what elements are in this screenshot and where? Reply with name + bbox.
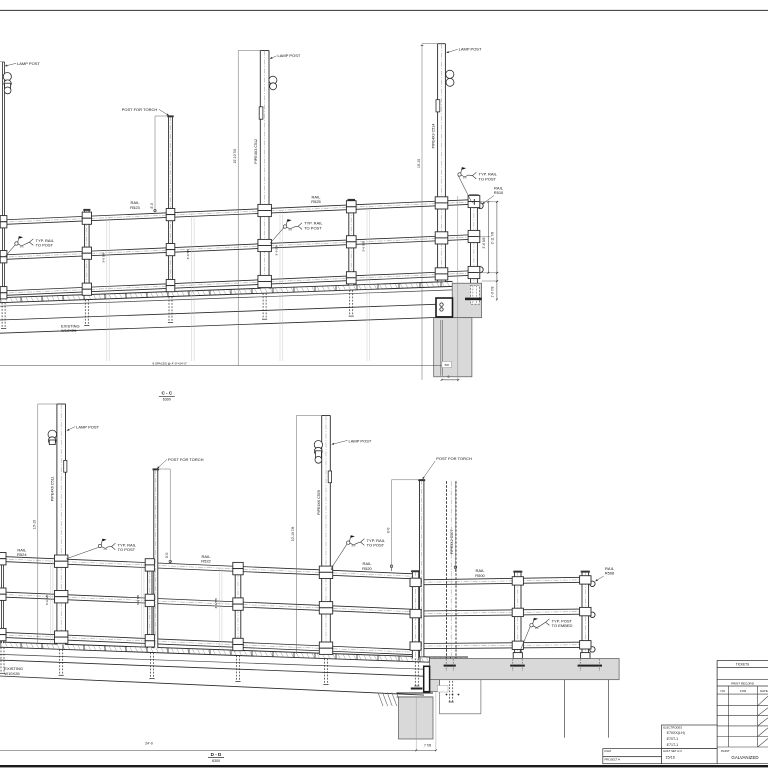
svg-text:ELECTRODES: ELECTRODES: [663, 726, 682, 730]
svg-text:8'-0: 8'-0: [165, 552, 169, 558]
svg-text:C - C: C - C: [161, 391, 172, 396]
svg-text:TO EMBED: TO EMBED: [552, 623, 573, 628]
svg-text:R520: R520: [362, 566, 372, 571]
svg-text:TICKETS: TICKETS: [736, 662, 749, 666]
svg-text:W10X26: W10X26: [4, 671, 20, 676]
svg-text:E70T-1: E70T-1: [667, 737, 679, 741]
svg-text:HOLT SET A N: HOLT SET A N: [663, 749, 682, 753]
svg-text:3'-6 5/8: 3'-6 5/8: [275, 245, 279, 256]
svg-text:LAMP POST: LAMP POST: [278, 53, 301, 58]
svg-text:R510: R510: [494, 190, 504, 195]
svg-text:TO POST: TO POST: [36, 243, 54, 248]
svg-text:8 SPACES @ 4'-0"=24'-0": 8 SPACES @ 4'-0"=24'-0": [153, 361, 188, 365]
svg-text:GALVANIZED: GALVANIZED: [731, 755, 758, 760]
svg-text:PAINT: PAINT: [721, 749, 730, 753]
svg-text:PIPE4X6 C511: PIPE4X6 C511: [50, 477, 54, 502]
svg-text:FOR: FOR: [740, 689, 747, 693]
svg-text:R525: R525: [311, 199, 321, 204]
svg-text:POST FOR TORCH: POST FOR TORCH: [436, 456, 472, 461]
svg-text:POST FOR TORCH: POST FOR TORCH: [168, 457, 204, 462]
svg-text:3'-6 5/8: 3'-6 5/8: [186, 249, 190, 260]
svg-text:15/16: 15/16: [665, 756, 675, 760]
svg-text:1'-0 7/8: 1'-0 7/8: [490, 286, 494, 297]
svg-text:3'-6 5/8: 3'-6 5/8: [214, 598, 218, 609]
svg-text:PRINT RECORD: PRINT RECORD: [731, 681, 755, 685]
svg-text:5/8: 5/8: [445, 363, 450, 367]
svg-text:3'-6 5/8: 3'-6 5/8: [136, 595, 140, 606]
svg-text:TO POST: TO POST: [367, 543, 385, 548]
svg-text:24'-0: 24'-0: [145, 742, 153, 746]
svg-text:10'-10 7/8: 10'-10 7/8: [291, 526, 295, 541]
svg-text:R523: R523: [130, 205, 140, 210]
svg-text:10'-10: 10'-10: [33, 520, 37, 529]
svg-text:W10X26: W10X26: [61, 328, 77, 333]
svg-text:LAMP POST: LAMP POST: [349, 438, 372, 443]
svg-text:E71T-1: E71T-1: [667, 743, 679, 747]
svg-text:PIPE4X6 C509: PIPE4X6 C509: [317, 490, 321, 515]
svg-text:PIPE3X2 C507: PIPE3X2 C507: [450, 529, 454, 554]
svg-text:TO POST: TO POST: [479, 176, 497, 181]
svg-text:TO POST: TO POST: [304, 225, 322, 230]
svg-text:PIPE4X3 C512: PIPE4X3 C512: [254, 139, 258, 164]
svg-text:R522: R522: [201, 559, 211, 564]
svg-text:FILM: FILM: [605, 749, 612, 753]
svg-text:8'-0: 8'-0: [386, 527, 390, 533]
svg-text:3'-6 5/8: 3'-6 5/8: [101, 252, 105, 263]
svg-text:7 7/8: 7 7/8: [424, 743, 431, 747]
svg-text:3'-6 5/8: 3'-6 5/8: [362, 241, 366, 252]
svg-text:PROJECT #: PROJECT #: [605, 757, 621, 761]
svg-text:TO POST: TO POST: [118, 547, 136, 552]
svg-text:10'-10 7/8: 10'-10 7/8: [233, 149, 237, 164]
svg-text:R506: R506: [605, 571, 615, 576]
svg-text:8'-0: 8'-0: [150, 203, 154, 209]
svg-text:LAMP POST: LAMP POST: [76, 424, 99, 429]
svg-text:R524: R524: [17, 552, 27, 557]
svg-text:POST FOR TORCH: POST FOR TORCH: [122, 107, 158, 112]
svg-text:NO: NO: [721, 689, 726, 693]
svg-text:9: 9: [448, 375, 450, 379]
svg-text:3'-6 5/8: 3'-6 5/8: [45, 595, 49, 606]
svg-text:6300: 6300: [212, 759, 220, 763]
svg-text:D - D: D - D: [211, 752, 222, 757]
svg-text:10'-10: 10'-10: [417, 159, 421, 168]
svg-text:E70XX(LH): E70XX(LH): [667, 731, 685, 735]
svg-text:3'-6 5/8: 3'-6 5/8: [482, 237, 486, 248]
svg-text:R500: R500: [475, 573, 485, 578]
svg-text:6300: 6300: [163, 398, 171, 402]
svg-text:LAMP POST: LAMP POST: [17, 61, 40, 66]
svg-text:LAMP POST: LAMP POST: [459, 47, 482, 52]
svg-text:2'-11 7/8: 2'-11 7/8: [490, 232, 494, 245]
svg-text:DATE: DATE: [760, 689, 768, 693]
svg-text:PIPE4X3 C514: PIPE4X3 C514: [432, 124, 436, 149]
